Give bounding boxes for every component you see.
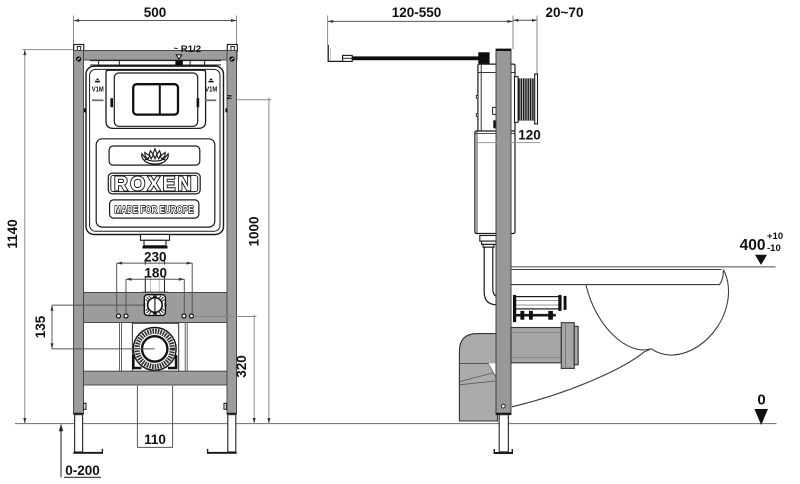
svg-text:V1M: V1M	[205, 87, 217, 94]
svg-text:N: N	[226, 94, 233, 99]
svg-text:120-550: 120-550	[392, 5, 442, 20]
svg-text:135: 135	[33, 315, 48, 338]
svg-text:320: 320	[234, 355, 249, 378]
svg-text:180: 180	[144, 265, 167, 280]
svg-text:0: 0	[757, 392, 765, 409]
svg-text:ROXEN: ROXEN	[114, 172, 194, 195]
svg-text:R1/2: R1/2	[181, 44, 201, 55]
svg-text:20~70: 20~70	[546, 5, 584, 20]
svg-text:-10: -10	[767, 243, 781, 254]
svg-text:0-200: 0-200	[65, 463, 100, 478]
svg-text:400: 400	[740, 237, 766, 254]
svg-text:230: 230	[144, 249, 167, 264]
svg-text:+10: +10	[767, 231, 783, 242]
svg-text:110: 110	[144, 432, 166, 447]
svg-text:MADE FOR EUROPE: MADE FOR EUROPE	[115, 205, 194, 216]
svg-text:500: 500	[144, 5, 167, 20]
svg-text:1140: 1140	[5, 219, 20, 248]
svg-text:120: 120	[518, 128, 541, 143]
svg-text:V1M: V1M	[92, 87, 104, 94]
svg-text:1000: 1000	[247, 216, 262, 246]
svg-text:~: ~	[174, 44, 179, 53]
